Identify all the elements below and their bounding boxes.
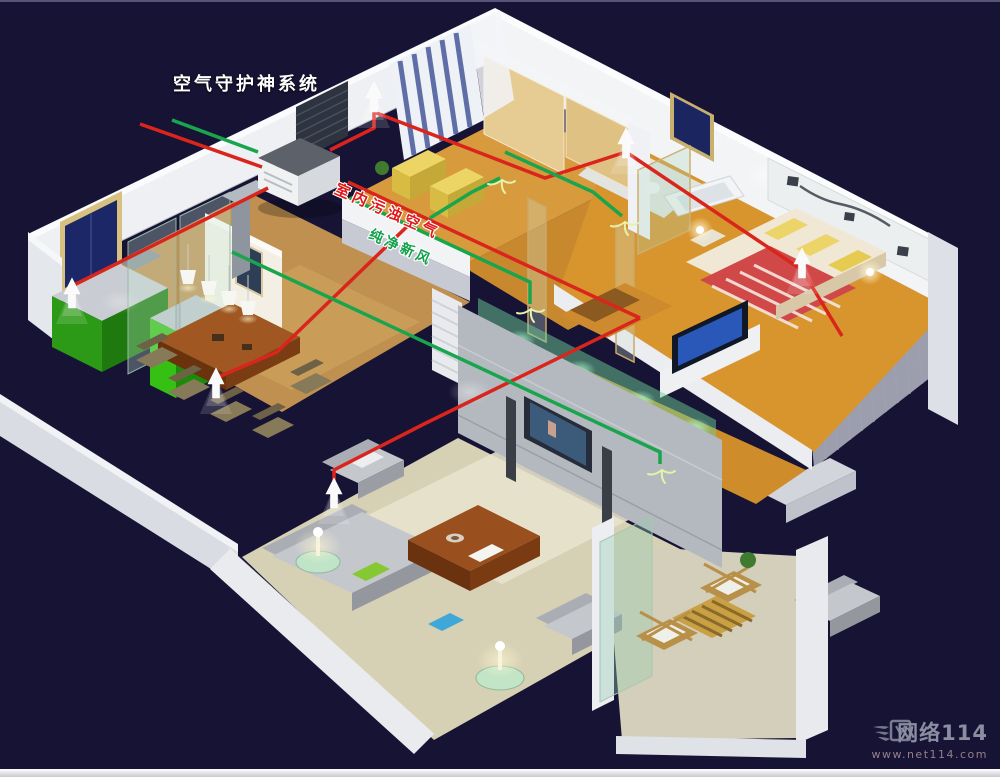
right-corner-column bbox=[928, 232, 958, 425]
watermark-site-url: www.net114.com bbox=[871, 748, 988, 761]
plant bbox=[740, 552, 756, 568]
net114-logo-icon bbox=[871, 717, 913, 743]
ventilation-system-diagram: 空气守护神系统 室内污浊空气 纯净新风 网络114 www.net114.com bbox=[0, 0, 1000, 777]
diagram-title: 空气守护神系统 bbox=[173, 70, 320, 96]
speaker bbox=[506, 396, 516, 482]
top-border bbox=[0, 0, 1000, 2]
sliding-glass-door bbox=[600, 516, 652, 702]
range-hood-duct bbox=[232, 199, 250, 279]
plant bbox=[375, 161, 389, 175]
watermark: 网络114 www.net114.com bbox=[871, 717, 988, 761]
bottom-strip bbox=[0, 769, 1000, 777]
isometric-apartment-render bbox=[0, 0, 1000, 777]
